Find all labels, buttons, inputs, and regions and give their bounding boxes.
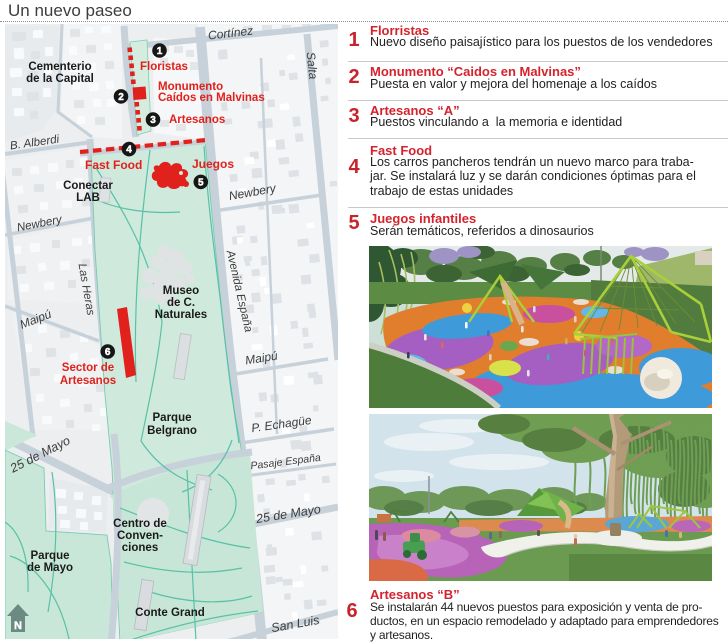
svg-text:de C.: de C. — [167, 297, 195, 309]
svg-text:4: 4 — [126, 145, 132, 156]
svg-text:Cementerio: Cementerio — [28, 61, 91, 73]
svg-text:N: N — [14, 620, 22, 632]
svg-text:2: 2 — [118, 92, 124, 103]
svg-text:1: 1 — [157, 46, 163, 57]
svg-text:LAB: LAB — [76, 192, 100, 204]
svg-text:5: 5 — [198, 177, 204, 188]
svg-text:Juegos: Juegos — [192, 157, 234, 171]
svg-text:Parque: Parque — [31, 550, 70, 562]
svg-text:Salta: Salta — [304, 51, 321, 80]
svg-text:de la Capital: de la Capital — [26, 73, 94, 85]
svg-text:Artesanos: Artesanos — [60, 375, 116, 387]
svg-text:Fast Food: Fast Food — [85, 158, 142, 172]
svg-text:Naturales: Naturales — [155, 309, 207, 321]
svg-text:6: 6 — [105, 347, 111, 358]
svg-text:Caídos en Malvinas: Caídos en Malvinas — [158, 92, 265, 104]
svg-text:3: 3 — [150, 115, 156, 126]
svg-text:Conven-: Conven- — [117, 530, 163, 542]
svg-text:Artesanos: Artesanos — [169, 114, 225, 126]
svg-text:Centro de: Centro de — [113, 518, 167, 530]
svg-text:Floristas: Floristas — [140, 61, 188, 73]
svg-text:Belgrano: Belgrano — [147, 425, 197, 437]
svg-text:Conte Grand: Conte Grand — [135, 607, 205, 619]
svg-text:Parque: Parque — [153, 412, 192, 424]
svg-text:Conectar: Conectar — [63, 180, 113, 192]
svg-text:ciones: ciones — [122, 542, 158, 554]
svg-text:Sector de: Sector de — [62, 362, 114, 374]
svg-text:Museo: Museo — [163, 285, 199, 297]
svg-text:de Mayo: de Mayo — [27, 562, 73, 574]
